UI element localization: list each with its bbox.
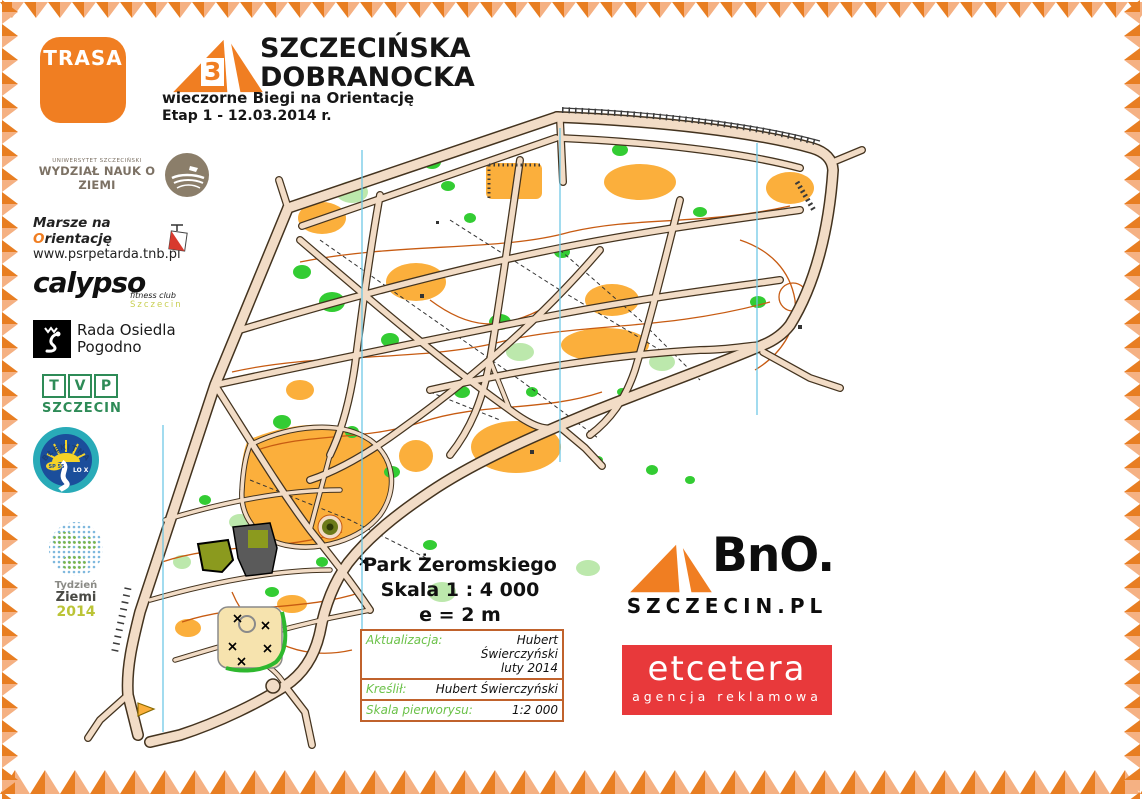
sponsor-tvp: T V P SZCZECIN (42, 374, 122, 416)
sponsor-university: UNIWERSYTET SZCZECIŃSKI WYDZIAŁ NAUK O Z… (34, 152, 210, 198)
map-scale: Skala 1 : 4 000 (348, 578, 572, 603)
blekitna-lox: LO X (73, 467, 89, 474)
rada-line2: Pogodno (77, 339, 176, 356)
fountain (318, 515, 342, 539)
park-map-graphic (0, 0, 1142, 799)
calypso-sub1: fitness club (130, 291, 176, 300)
orienteering-flag-icon (167, 223, 189, 253)
credits-value: Hubert Świerczyński luty 2014 (448, 633, 558, 675)
rada-line1: Rada Osiedla (77, 322, 176, 339)
griffin-icon (33, 320, 71, 358)
sponsor-calypso: calypso fitness club Szczecin (33, 266, 193, 308)
building-complex (198, 523, 277, 576)
sponsor-tydzien-ziemi: Tydzień Ziemi 2014 (36, 520, 116, 620)
sponsor-rada-osiedla: Rada Osiedla Pogodno (33, 320, 176, 358)
sponsor-marsze: Marsze na Orientację www.psrpetarda.tnb.… (33, 215, 193, 262)
map-info-block: Park Żeromskiego Skala 1 : 4 000 e = 2 m (348, 553, 572, 628)
tvp-letter-v: V (68, 374, 92, 398)
credits-table: Aktualizacja: Hubert Świerczyński luty 2… (360, 629, 564, 722)
etcetera-logo: etcetera agencja reklamowa (622, 645, 832, 715)
tydzien-line2: Ziemi (36, 591, 116, 604)
sponsor-blekitna-badge: SP 55 LO X BŁĘKITNA (32, 426, 100, 494)
credits-label: Aktualizacja: (366, 633, 442, 675)
etcetera-subtitle: agencja reklamowa (622, 689, 832, 704)
tvp-letter-p: P (94, 374, 118, 398)
credits-row-skala: Skala pierworysu: 1:2 000 (362, 699, 562, 720)
credits-label: Skala pierworysu: (366, 703, 473, 717)
park-name: Park Żeromskiego (348, 553, 572, 578)
bno-wordmark: BnO. (712, 528, 834, 583)
credits-value: Hubert Świerczyński (436, 682, 558, 696)
university-logo-icon (164, 152, 210, 198)
bno-domain-label: SZCZECIN.PL (620, 594, 834, 618)
calypso-sub2: Szczecin (130, 300, 183, 310)
blekitna-sp55: SP 55 (49, 464, 65, 470)
credits-value: 1:2 000 (512, 703, 558, 717)
tvp-city-label: SZCZECIN (42, 401, 122, 416)
etcetera-wordmark: etcetera (622, 649, 832, 689)
university-name-label: WYDZIAŁ NAUK O ZIEMI (34, 164, 160, 192)
dotted-globe-icon (47, 520, 105, 578)
bno-logo-icon (628, 543, 714, 594)
poster-page: TRASA 3 SZCZECIŃSKA DOBRANOCKA wieczorne… (0, 0, 1142, 799)
calypso-wordmark: calypso (33, 266, 145, 299)
contour-interval: e = 2 m (348, 603, 572, 628)
tydzien-line3: 2014 (36, 604, 116, 620)
credits-row-kreslil: Kreślił: Hubert Świerczyński (362, 678, 562, 699)
roundabout (266, 679, 280, 693)
credits-label: Kreślił: (366, 682, 407, 696)
credits-row-aktualizacja: Aktualizacja: Hubert Świerczyński luty 2… (362, 631, 562, 678)
orange-marker (138, 703, 154, 716)
tvp-letter-t: T (42, 374, 66, 398)
